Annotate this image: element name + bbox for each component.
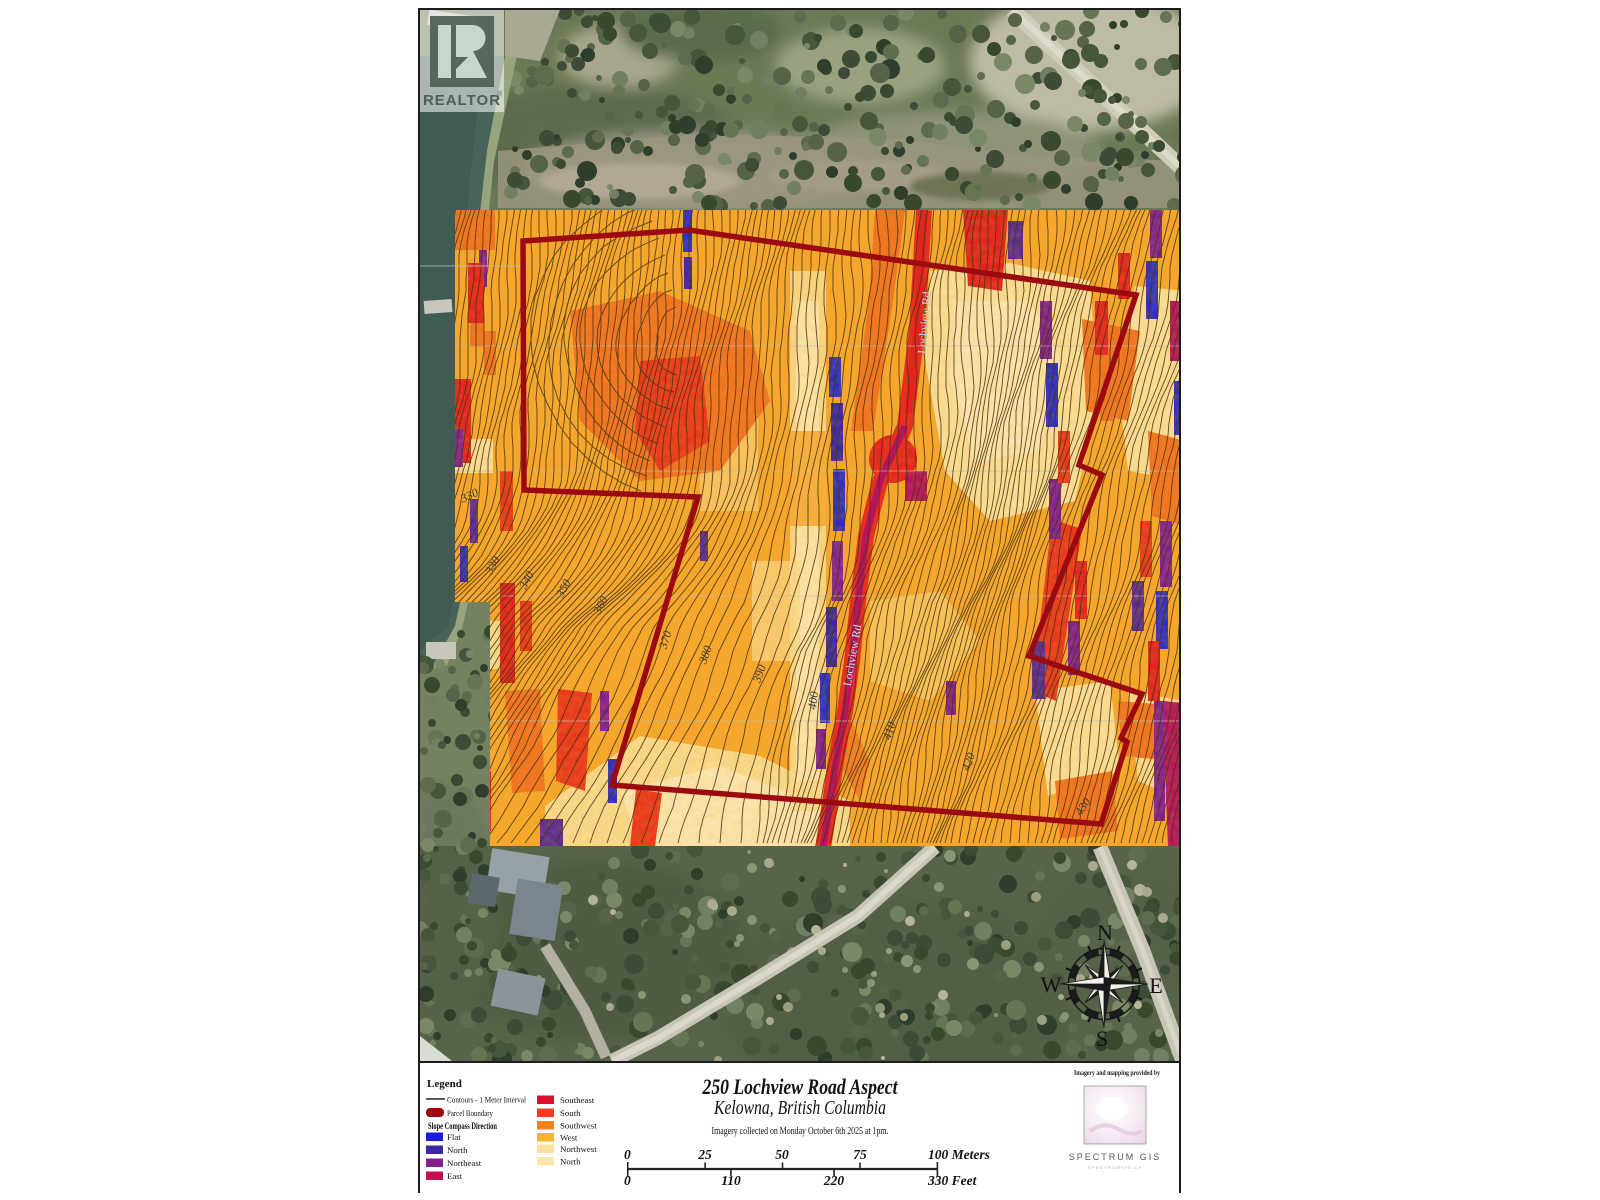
svg-text:75: 75 xyxy=(853,1147,867,1162)
svg-text:Flat: Flat xyxy=(447,1132,461,1142)
svg-text:SPECTRUMGIS.CA: SPECTRUMGIS.CA xyxy=(1088,1165,1143,1170)
svg-text:Southwest: Southwest xyxy=(560,1121,597,1131)
svg-text:100 Meters: 100 Meters xyxy=(928,1147,990,1162)
svg-text:Kelowna, British Columbia: Kelowna, British Columbia xyxy=(713,1097,886,1119)
svg-text:East: East xyxy=(447,1171,463,1181)
svg-text:25: 25 xyxy=(697,1147,712,1162)
svg-text:110: 110 xyxy=(721,1173,741,1188)
svg-text:Legend: Legend xyxy=(427,1078,462,1090)
svg-text:250 Lochview Road Aspect: 250 Lochview Road Aspect xyxy=(702,1074,899,1099)
svg-text:Imagery and mapping provided b: Imagery and mapping provided by xyxy=(1074,1068,1160,1077)
svg-text:South: South xyxy=(560,1108,581,1118)
svg-text:400: 400 xyxy=(805,691,821,711)
svg-text:50: 50 xyxy=(775,1147,789,1162)
svg-text:REALTOR: REALTOR xyxy=(423,92,501,109)
svg-text:S: S xyxy=(1096,1026,1108,1051)
svg-text:West: West xyxy=(560,1133,578,1143)
svg-text:Parcel Boundary: Parcel Boundary xyxy=(447,1108,493,1118)
svg-text:North: North xyxy=(560,1157,581,1167)
svg-text:Southeast: Southeast xyxy=(560,1095,595,1105)
svg-text:W: W xyxy=(1041,972,1062,997)
svg-text:Contours - 1 Meter Interval: Contours - 1 Meter Interval xyxy=(447,1095,526,1105)
svg-text:Northwest: Northwest xyxy=(560,1144,597,1154)
svg-text:North: North xyxy=(447,1145,468,1155)
svg-text:®: ® xyxy=(497,90,503,98)
svg-text:330 Feet: 330 Feet xyxy=(927,1173,978,1188)
svg-text:N: N xyxy=(1097,920,1113,945)
svg-text:SPECTRUM GIS: SPECTRUM GIS xyxy=(1069,1152,1162,1162)
svg-text:0: 0 xyxy=(624,1173,631,1188)
svg-text:Slope Compass Direction: Slope Compass Direction xyxy=(428,1121,497,1131)
svg-text:0: 0 xyxy=(624,1147,631,1162)
svg-text:Northeast: Northeast xyxy=(447,1158,482,1168)
svg-text:220: 220 xyxy=(823,1173,845,1188)
svg-text:E: E xyxy=(1149,973,1162,998)
svg-text:Imagery collected on Monday Oc: Imagery collected on Monday October 6th … xyxy=(712,1125,889,1137)
